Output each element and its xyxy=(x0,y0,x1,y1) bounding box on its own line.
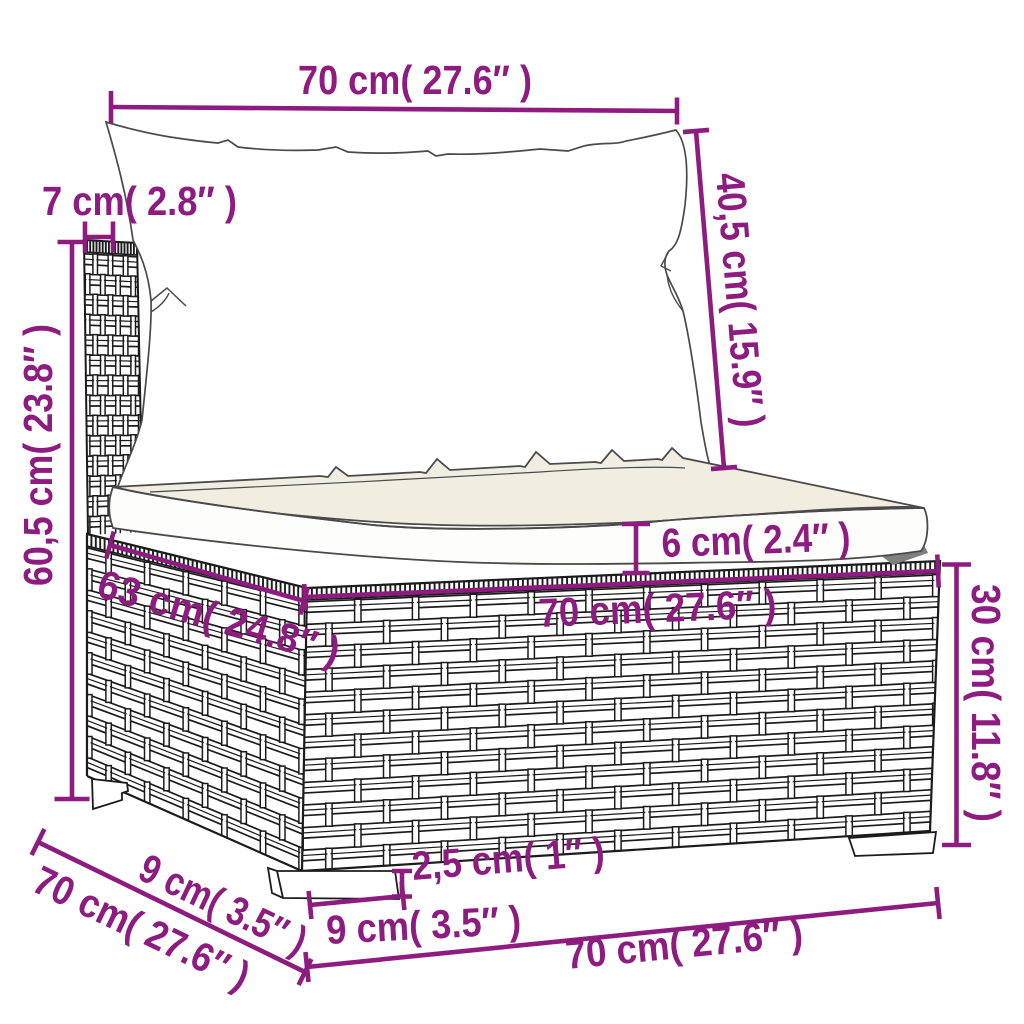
svg-text:70 cm( 27.6″ ): 70 cm( 27.6″ ) xyxy=(538,580,778,636)
svg-text:70 cm( 27.6″ ): 70 cm( 27.6″ ) xyxy=(298,57,532,103)
svg-text:60,5 cm( 23.8″ ): 60,5 cm( 23.8″ ) xyxy=(15,324,61,586)
svg-text:6 cm( 2.4″ ): 6 cm( 2.4″ ) xyxy=(661,513,851,566)
svg-text:7 cm( 2.8″ ): 7 cm( 2.8″ ) xyxy=(42,178,237,224)
svg-text:30 cm( 11.8″ ): 30 cm( 11.8″ ) xyxy=(963,584,1009,822)
